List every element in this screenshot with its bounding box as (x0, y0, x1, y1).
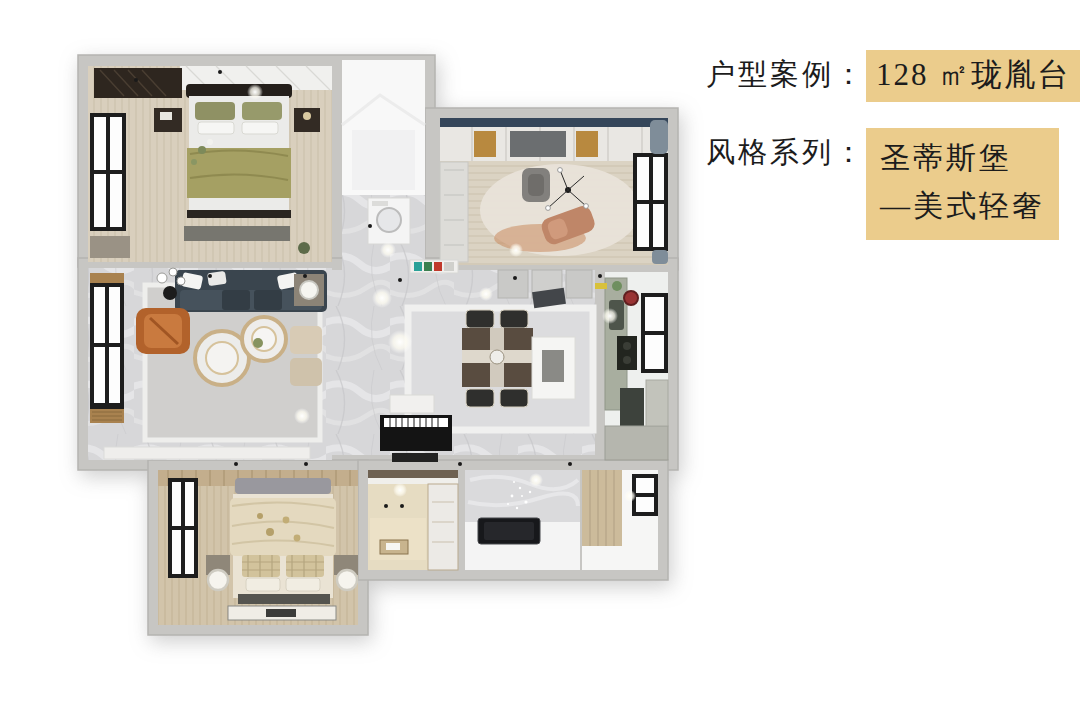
tall-cabinet (646, 380, 668, 426)
plant (612, 281, 622, 291)
window-icon (90, 273, 124, 423)
room-white-bathroom (342, 60, 425, 195)
refrigerator (620, 388, 644, 426)
style-value-line1: 圣蒂斯堡 (880, 134, 1045, 182)
room-study-bedroom (440, 118, 668, 265)
ottoman (290, 358, 322, 386)
style-value-line2: —美式轻奢 (880, 182, 1045, 230)
window-icon (90, 113, 126, 231)
window-icon (641, 293, 668, 373)
armchair (136, 308, 190, 354)
case-label: 户型案例： (706, 50, 866, 95)
style-value-highlight: 圣蒂斯堡 —美式轻奢 (866, 128, 1059, 240)
cabinet-top-trim (440, 118, 668, 127)
floor-lamp (208, 570, 228, 590)
plant (298, 242, 310, 254)
wall-clock-icon (624, 291, 638, 305)
case-value-highlight: 128 ㎡珑胤台 (866, 50, 1080, 102)
curtain (650, 120, 668, 154)
room-master-bedroom (88, 66, 332, 262)
room-balcony (582, 470, 658, 570)
room-dining-hall (332, 260, 595, 462)
ottoman (290, 326, 322, 354)
curtain (652, 250, 668, 264)
stove (617, 336, 637, 370)
case-row: 户型案例： 128 ㎡珑胤台 (706, 50, 1080, 102)
bed-bench (184, 226, 290, 241)
room-bathroom (465, 470, 580, 570)
floor-lamp (337, 570, 357, 590)
style-row: 风格系列： 圣蒂斯堡 —美式轻奢 (706, 128, 1080, 240)
trim (368, 470, 458, 478)
bathtub (478, 518, 540, 544)
room-second-bedroom (158, 470, 358, 625)
room-tatami (368, 470, 458, 570)
window-icon (168, 478, 198, 578)
side-table-lamp (294, 274, 324, 306)
floor-plan-rendering (70, 50, 690, 640)
low-table (380, 540, 408, 554)
annotation-panel: 户型案例： 128 ㎡珑胤台 风格系列： 圣蒂斯堡 —美式轻奢 (706, 50, 1080, 240)
room-kitchen (595, 272, 668, 460)
console-bookshelf (410, 260, 458, 273)
master-bed (186, 84, 292, 218)
page: 户型案例： 128 ㎡珑胤台 风格系列： 圣蒂斯堡 —美式轻奢 (0, 0, 1080, 703)
counter-bottom (605, 426, 668, 460)
ceiling-light (529, 473, 543, 487)
window-icon (633, 153, 668, 251)
washer (368, 198, 410, 244)
style-label: 风格系列： (706, 128, 866, 173)
wardrobe (440, 162, 468, 262)
cabinet (428, 484, 458, 570)
rug (228, 606, 336, 620)
room-entry-hall (342, 195, 425, 270)
wood-wall (582, 470, 622, 546)
island-sideboard (532, 337, 575, 399)
room-living-room (88, 268, 332, 460)
window-sill (90, 236, 130, 258)
wardrobe (94, 68, 182, 98)
light-strip (595, 283, 607, 289)
tv-console (104, 447, 310, 459)
bed (230, 478, 336, 604)
